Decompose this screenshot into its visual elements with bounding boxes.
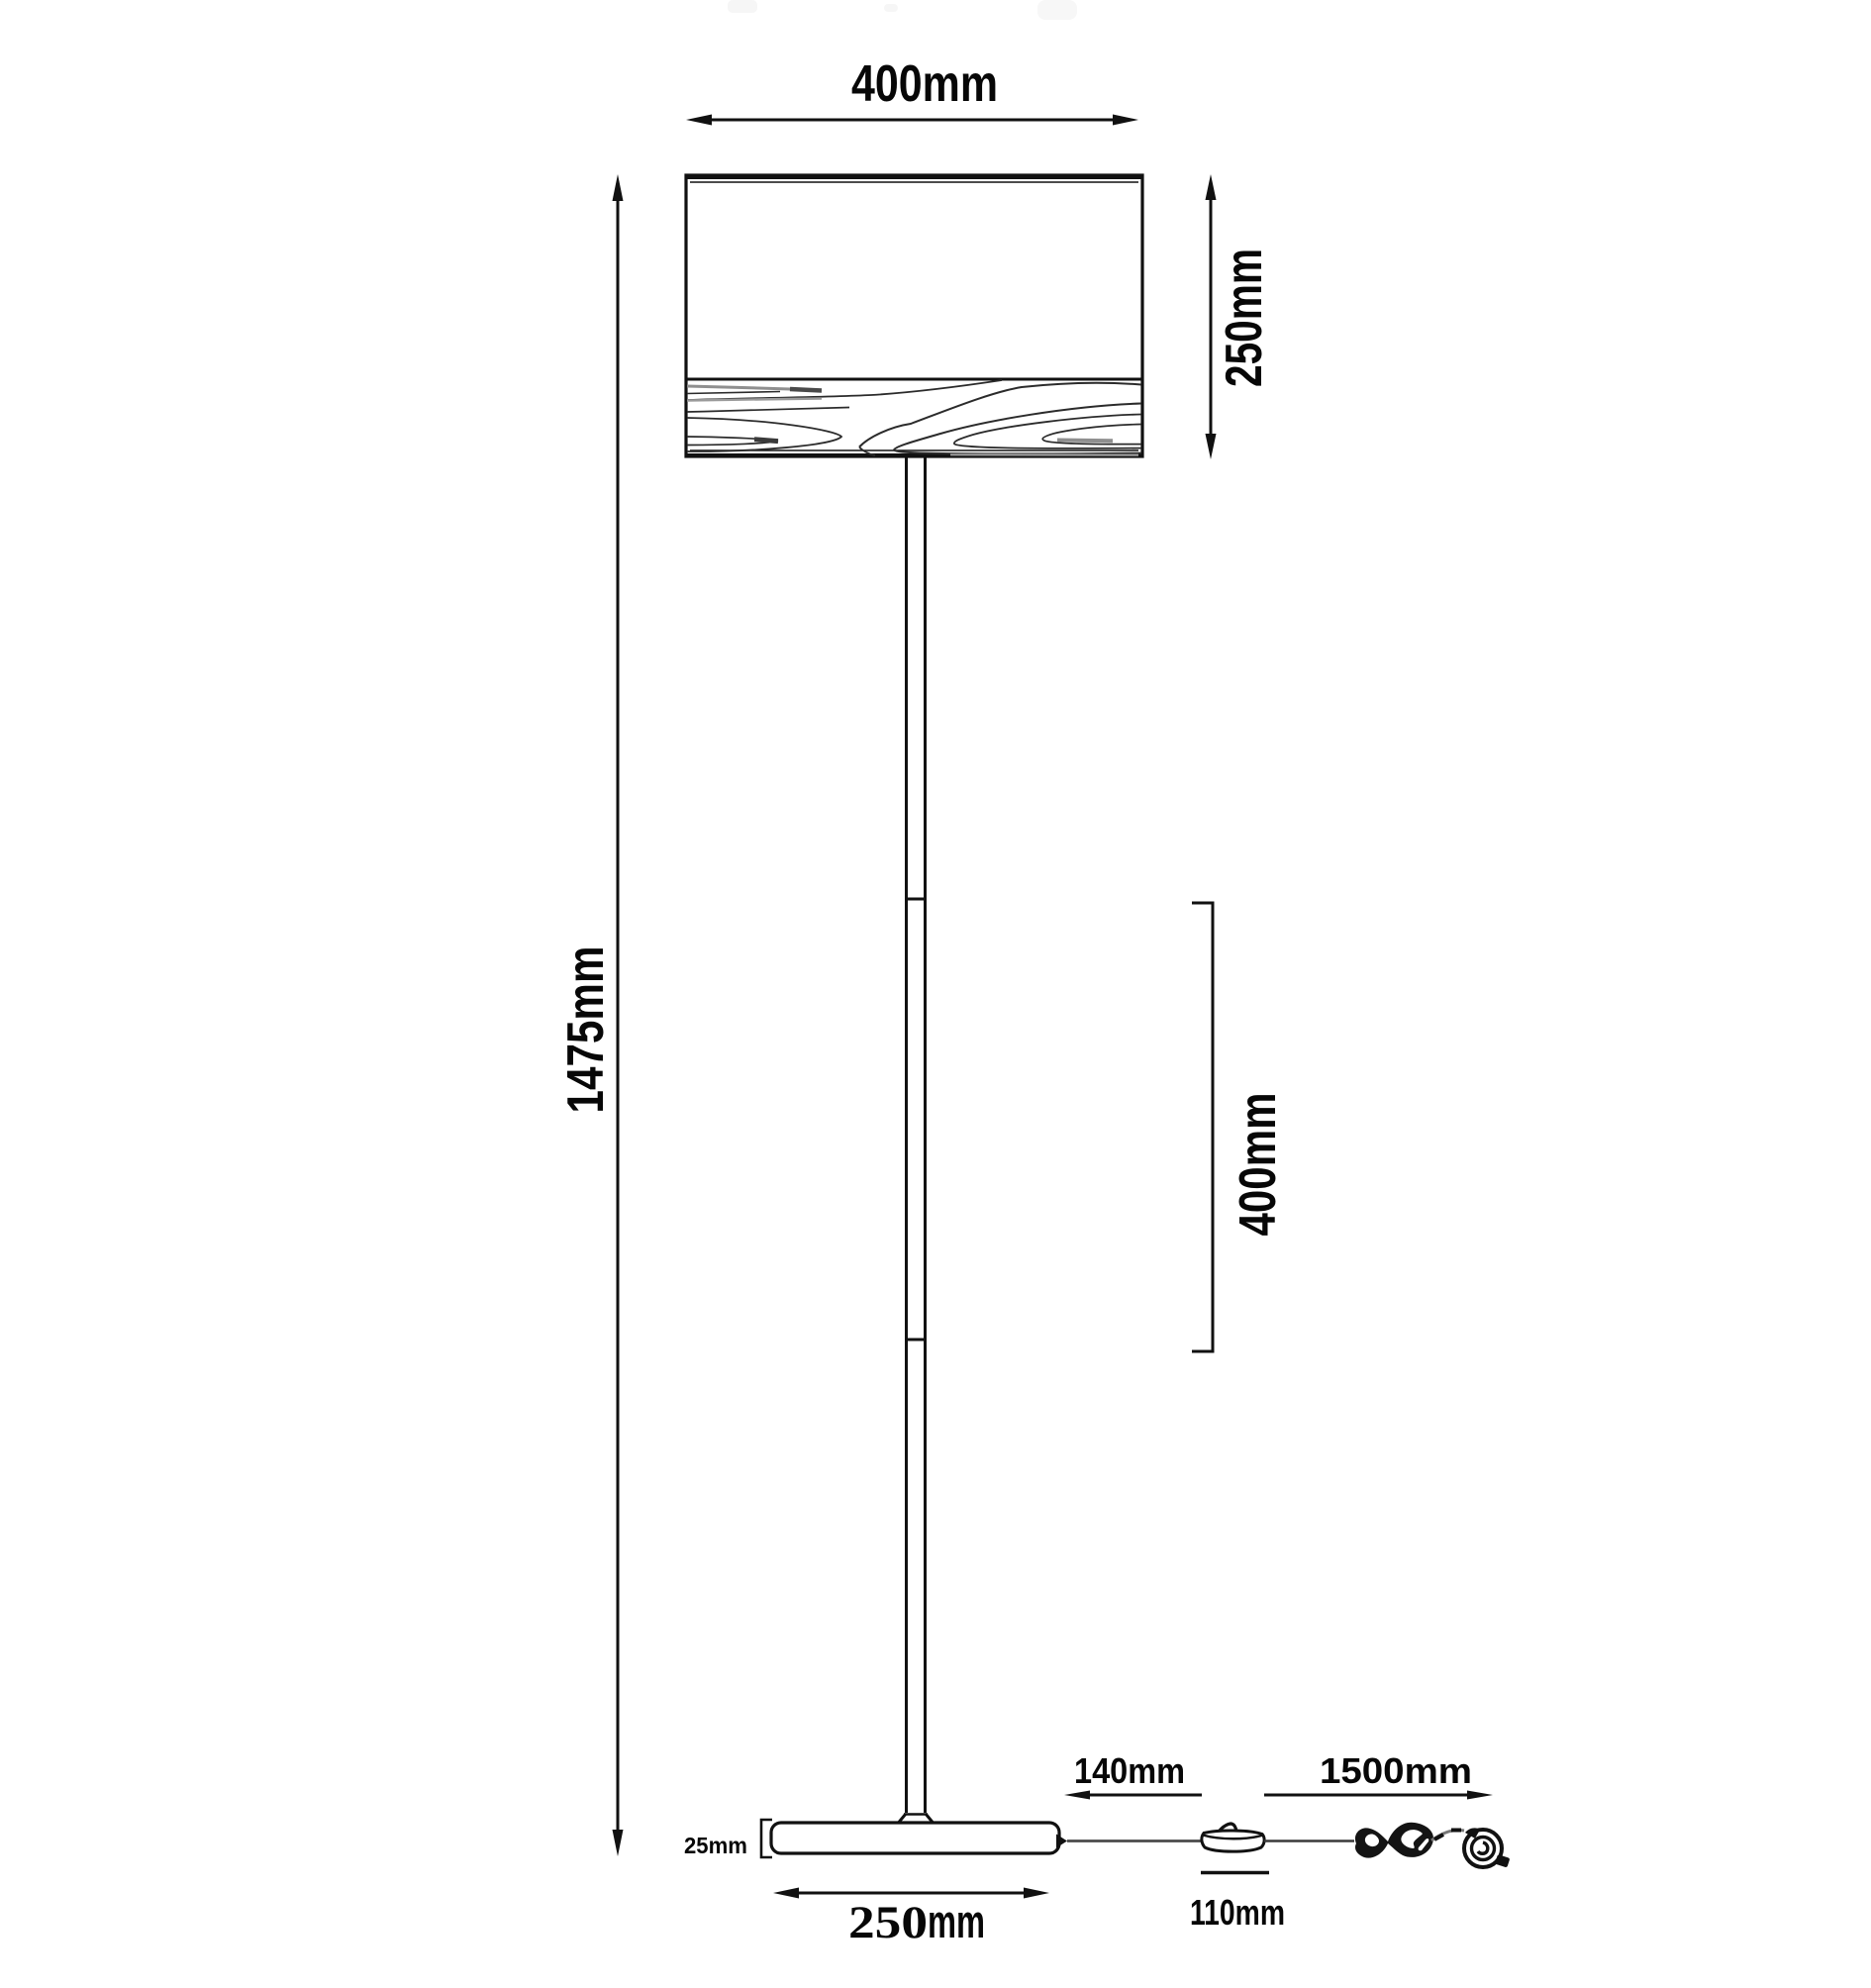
svg-text:110mm: 110mm — [1190, 1892, 1285, 1933]
svg-text:400mm: 400mm — [1230, 1093, 1287, 1237]
svg-text:250mm: 250mm — [848, 1895, 985, 1948]
svg-text:25mm: 25mm — [684, 1833, 747, 1858]
svg-text:1475mm: 1475mm — [557, 946, 615, 1114]
svg-text:1500mm: 1500mm — [1320, 1750, 1472, 1791]
svg-text:400mm: 400mm — [851, 55, 998, 113]
svg-text:140mm: 140mm — [1074, 1750, 1185, 1791]
svg-text:250mm: 250mm — [1216, 248, 1273, 387]
